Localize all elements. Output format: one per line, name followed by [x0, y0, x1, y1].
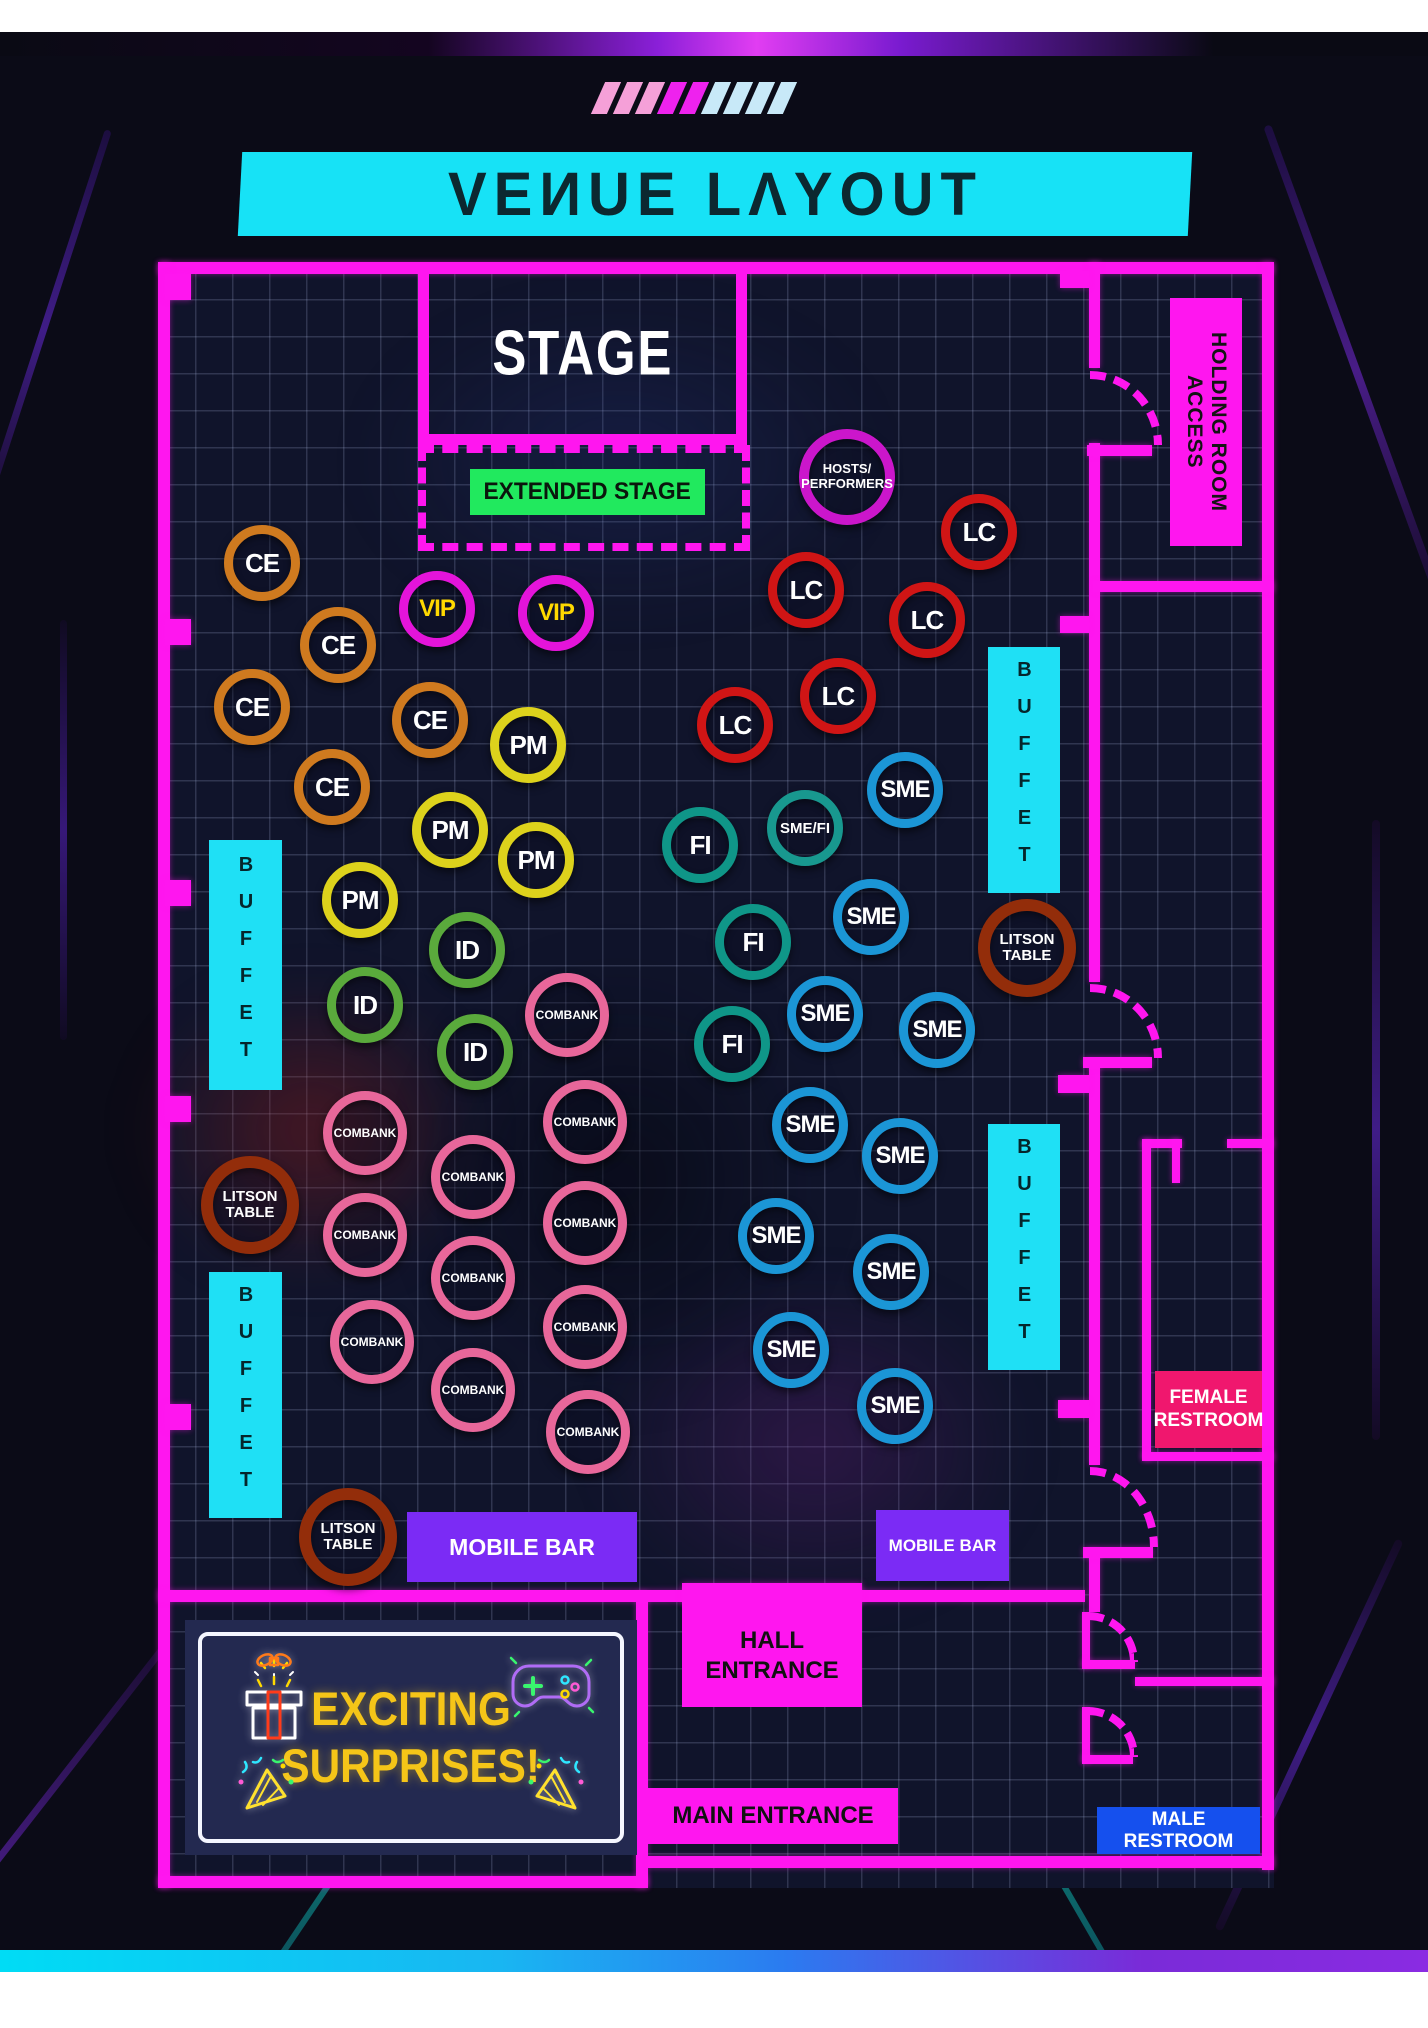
wall: [1089, 1550, 1100, 1612]
wall-tab: [165, 1096, 191, 1122]
wall-tab: [165, 880, 191, 906]
surprises-line1: EXCITING: [311, 1681, 511, 1737]
party-popper-icon: [233, 1748, 299, 1818]
surprises-line2: SURPRISES!: [282, 1738, 541, 1794]
table-hosts: HOSTS/ PERFORMERS: [799, 429, 895, 525]
wall: [636, 1592, 648, 1888]
mobile-bar-right: MOBILE BAR: [876, 1510, 1009, 1581]
male-restroom: MALE RESTROOM: [1097, 1807, 1260, 1854]
wall-tab: [682, 1583, 862, 1604]
surprises-banner: EXCITING SURPRISES!: [185, 1620, 637, 1855]
wall: [1089, 443, 1100, 982]
buffet-right-top: BUFFET: [988, 647, 1060, 893]
wall: [1089, 1063, 1100, 1465]
table-combank: COMBANK: [431, 1236, 515, 1320]
table-combank: COMBANK: [323, 1193, 407, 1277]
venue-layout-poster: VEИUE LΛYOUT STAGE: [0, 0, 1428, 2028]
decor-line: [1372, 820, 1380, 1440]
wall: [158, 1876, 648, 1888]
wall-tab: [165, 274, 191, 300]
page-title: VEИUE LΛYOUT: [448, 159, 983, 229]
table-combank: COMBANK: [543, 1080, 627, 1164]
page-title-banner: VEИUE LΛYOUT: [238, 152, 1192, 236]
table-lc: LC: [941, 494, 1017, 570]
door-leaf: [1087, 445, 1152, 456]
top-gradient-bar: [0, 32, 1428, 56]
extended-stage: EXTENDED STAGE: [470, 469, 705, 515]
table-litson: LITSON TABLE: [201, 1156, 299, 1254]
table-litson: LITSON TABLE: [978, 899, 1076, 997]
table-combank: COMBANK: [543, 1181, 627, 1265]
female-restroom: FEMALE RESTROOM: [1155, 1371, 1262, 1448]
table-vip: VIP: [518, 575, 594, 651]
wall: [1142, 1452, 1274, 1461]
table-lc: LC: [800, 658, 876, 734]
table-lc: LC: [697, 687, 773, 763]
holding-room-access: HOLDING ROOM ACCESS: [1170, 298, 1242, 546]
wall-tab: [1058, 1400, 1089, 1418]
table-fi: FI: [715, 904, 791, 980]
table-lc: LC: [889, 582, 965, 658]
wall: [1089, 262, 1100, 368]
table-litson: LITSON TABLE: [299, 1488, 397, 1586]
table-pm: PM: [490, 707, 566, 783]
table-combank: COMBANK: [330, 1300, 414, 1384]
table-sme: SME: [753, 1312, 829, 1388]
stage: STAGE: [418, 262, 747, 445]
table-combank: COMBANK: [431, 1348, 515, 1432]
table-ce: CE: [300, 607, 376, 683]
extended-stage-label: EXTENDED STAGE: [484, 478, 691, 506]
decor-line: [0, 129, 112, 531]
table-ce: CE: [294, 749, 370, 825]
wall: [1262, 262, 1274, 1870]
table-id: ID: [437, 1014, 513, 1090]
table-ce: CE: [224, 525, 300, 601]
table-vip: VIP: [399, 571, 475, 647]
buffet-right-bottom: BUFFET: [988, 1124, 1060, 1370]
wall-tab: [165, 619, 191, 645]
table-id: ID: [327, 967, 403, 1043]
table-sme: SME: [899, 992, 975, 1068]
buffet-left-bottom: BUFFET: [209, 1272, 282, 1518]
table-sme: SME: [772, 1087, 848, 1163]
table-fi: FI: [694, 1006, 770, 1082]
buffet-left-top: BUFFET: [209, 840, 282, 1090]
decor-line: [60, 620, 67, 1040]
table-pm: PM: [412, 792, 488, 868]
table-id: ID: [429, 912, 505, 988]
table-sme: SME: [862, 1118, 938, 1194]
table-sme: SME: [787, 976, 863, 1052]
table-smefi: SME/FI: [767, 790, 843, 866]
hall-entrance: HALL ENTRANCE: [682, 1604, 862, 1707]
bottom-gradient-bar: [0, 1950, 1428, 1972]
table-ce: CE: [392, 682, 468, 758]
wall: [1135, 1677, 1274, 1686]
main-entrance: MAIN ENTRANCE: [648, 1788, 898, 1844]
game-controller-icon: [503, 1654, 599, 1726]
table-pm: PM: [322, 862, 398, 938]
mobile-bar-left: MOBILE BAR: [407, 1512, 637, 1582]
wall: [1093, 581, 1274, 592]
wall: [1227, 1139, 1274, 1148]
stage-label: STAGE: [492, 317, 673, 389]
table-sme: SME: [857, 1368, 933, 1444]
wall: [648, 1856, 1274, 1868]
top-margin: [0, 0, 1428, 32]
table-sme: SME: [853, 1234, 929, 1310]
header-slashes: [598, 82, 848, 114]
table-ce: CE: [214, 669, 290, 745]
door-leaf: [1083, 1057, 1152, 1068]
wall-tab: [1060, 271, 1089, 288]
party-popper-icon: [523, 1748, 589, 1818]
table-combank: COMBANK: [323, 1091, 407, 1175]
table-combank: COMBANK: [546, 1390, 630, 1474]
table-sme: SME: [833, 879, 909, 955]
table-pm: PM: [498, 822, 574, 898]
decor-line: [1263, 124, 1428, 615]
gift-icon: [241, 1646, 307, 1742]
wall-tab: [1058, 1075, 1089, 1093]
table-sme: SME: [867, 752, 943, 828]
wall: [1172, 1139, 1180, 1183]
table-fi: FI: [662, 807, 738, 883]
bottom-margin: [0, 1972, 1428, 2028]
wall: [1142, 1139, 1151, 1460]
wall: [158, 1590, 1085, 1602]
wall-tab: [165, 1404, 191, 1430]
wall: [158, 262, 170, 1888]
table-combank: COMBANK: [543, 1285, 627, 1369]
wall-tab: [1060, 616, 1089, 633]
table-combank: COMBANK: [431, 1135, 515, 1219]
table-combank: COMBANK: [525, 973, 609, 1057]
door-leaf: [1083, 1547, 1153, 1558]
table-sme: SME: [738, 1198, 814, 1274]
table-lc: LC: [768, 552, 844, 628]
